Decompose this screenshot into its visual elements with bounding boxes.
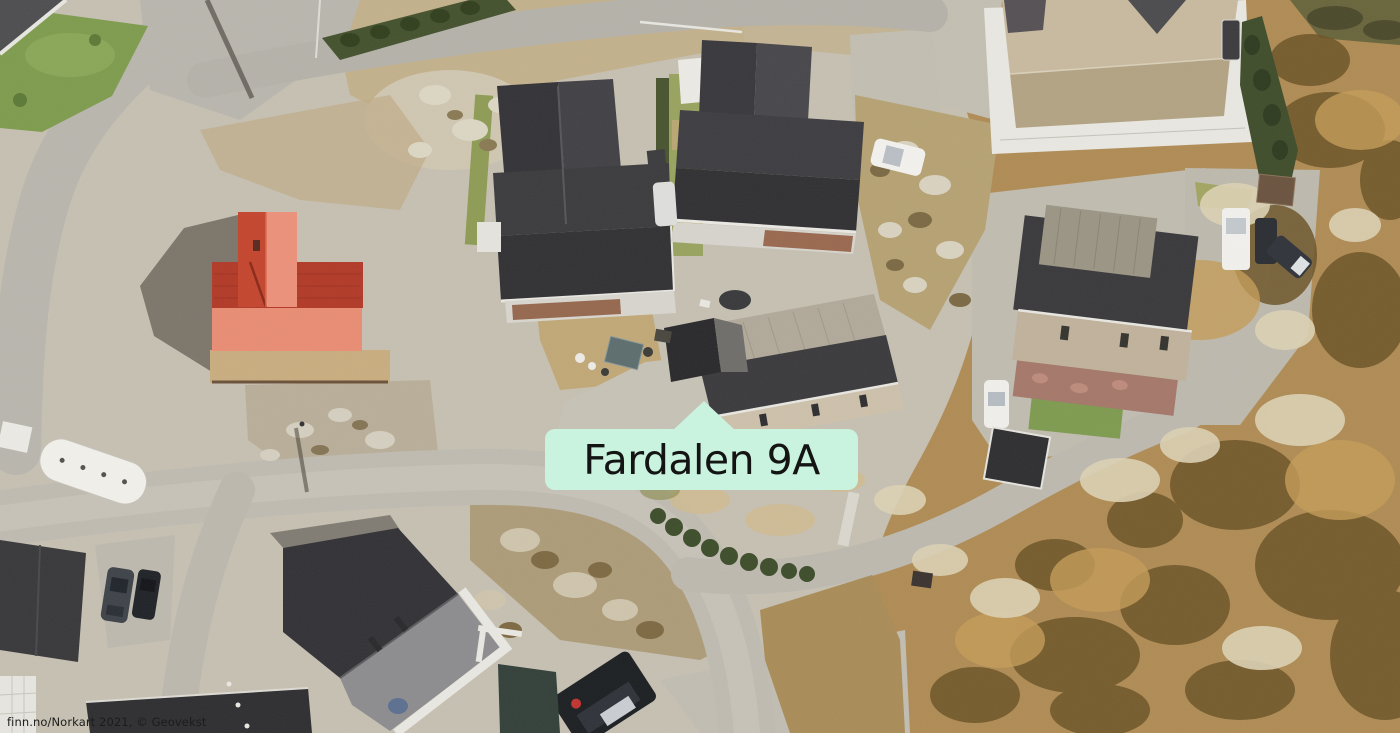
photo-grain — [0, 0, 1400, 733]
map-attribution: finn.no/Norkart 2021, © Geovekst — [7, 715, 206, 729]
aerial-photo[interactable] — [0, 0, 1400, 733]
address-marker-label: Fardalen 9A — [545, 429, 858, 490]
marker-pointer-arrow — [671, 401, 737, 432]
map-viewport: Fardalen 9A finn.no/Norkart 2021, © Geov… — [0, 0, 1400, 733]
